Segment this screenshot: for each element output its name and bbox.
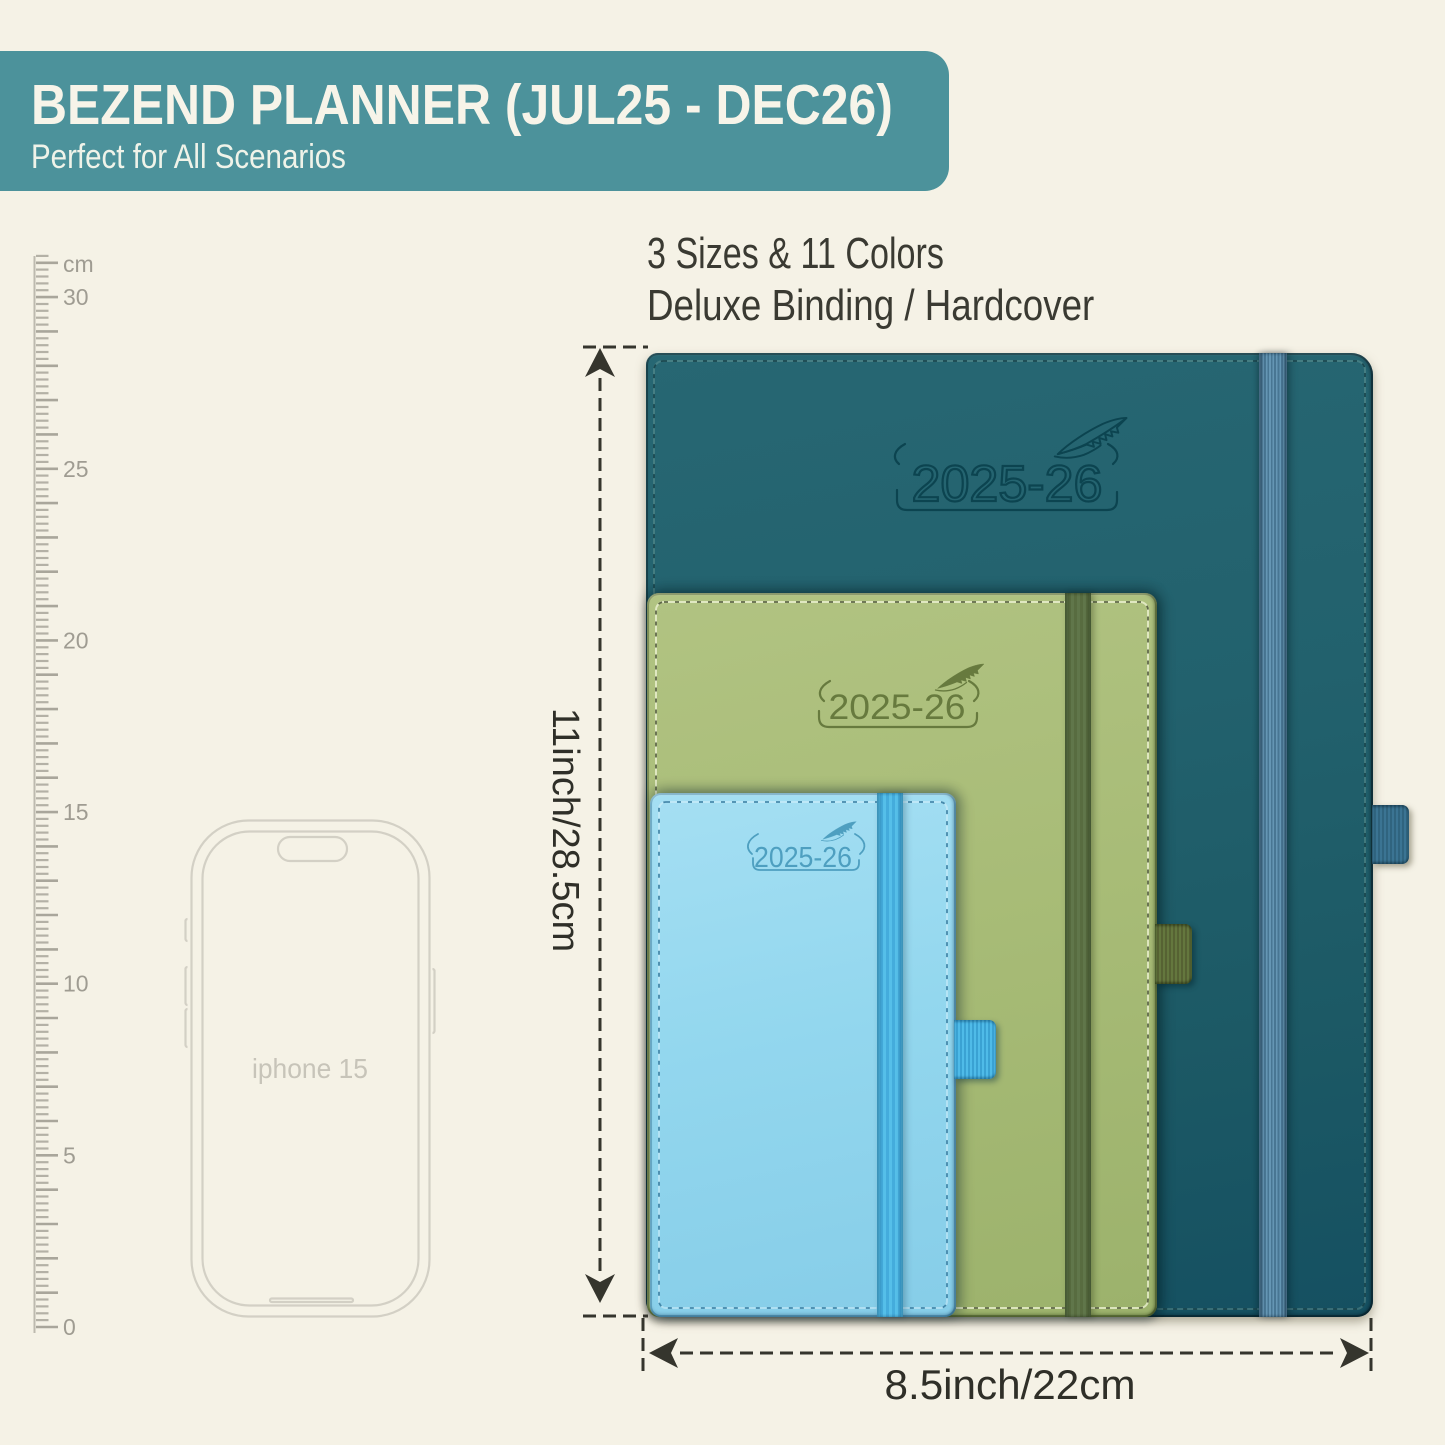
- svg-text:8.5inch/22cm: 8.5inch/22cm: [885, 1361, 1136, 1408]
- svg-text:11inch/28.5cm: 11inch/28.5cm: [544, 708, 586, 952]
